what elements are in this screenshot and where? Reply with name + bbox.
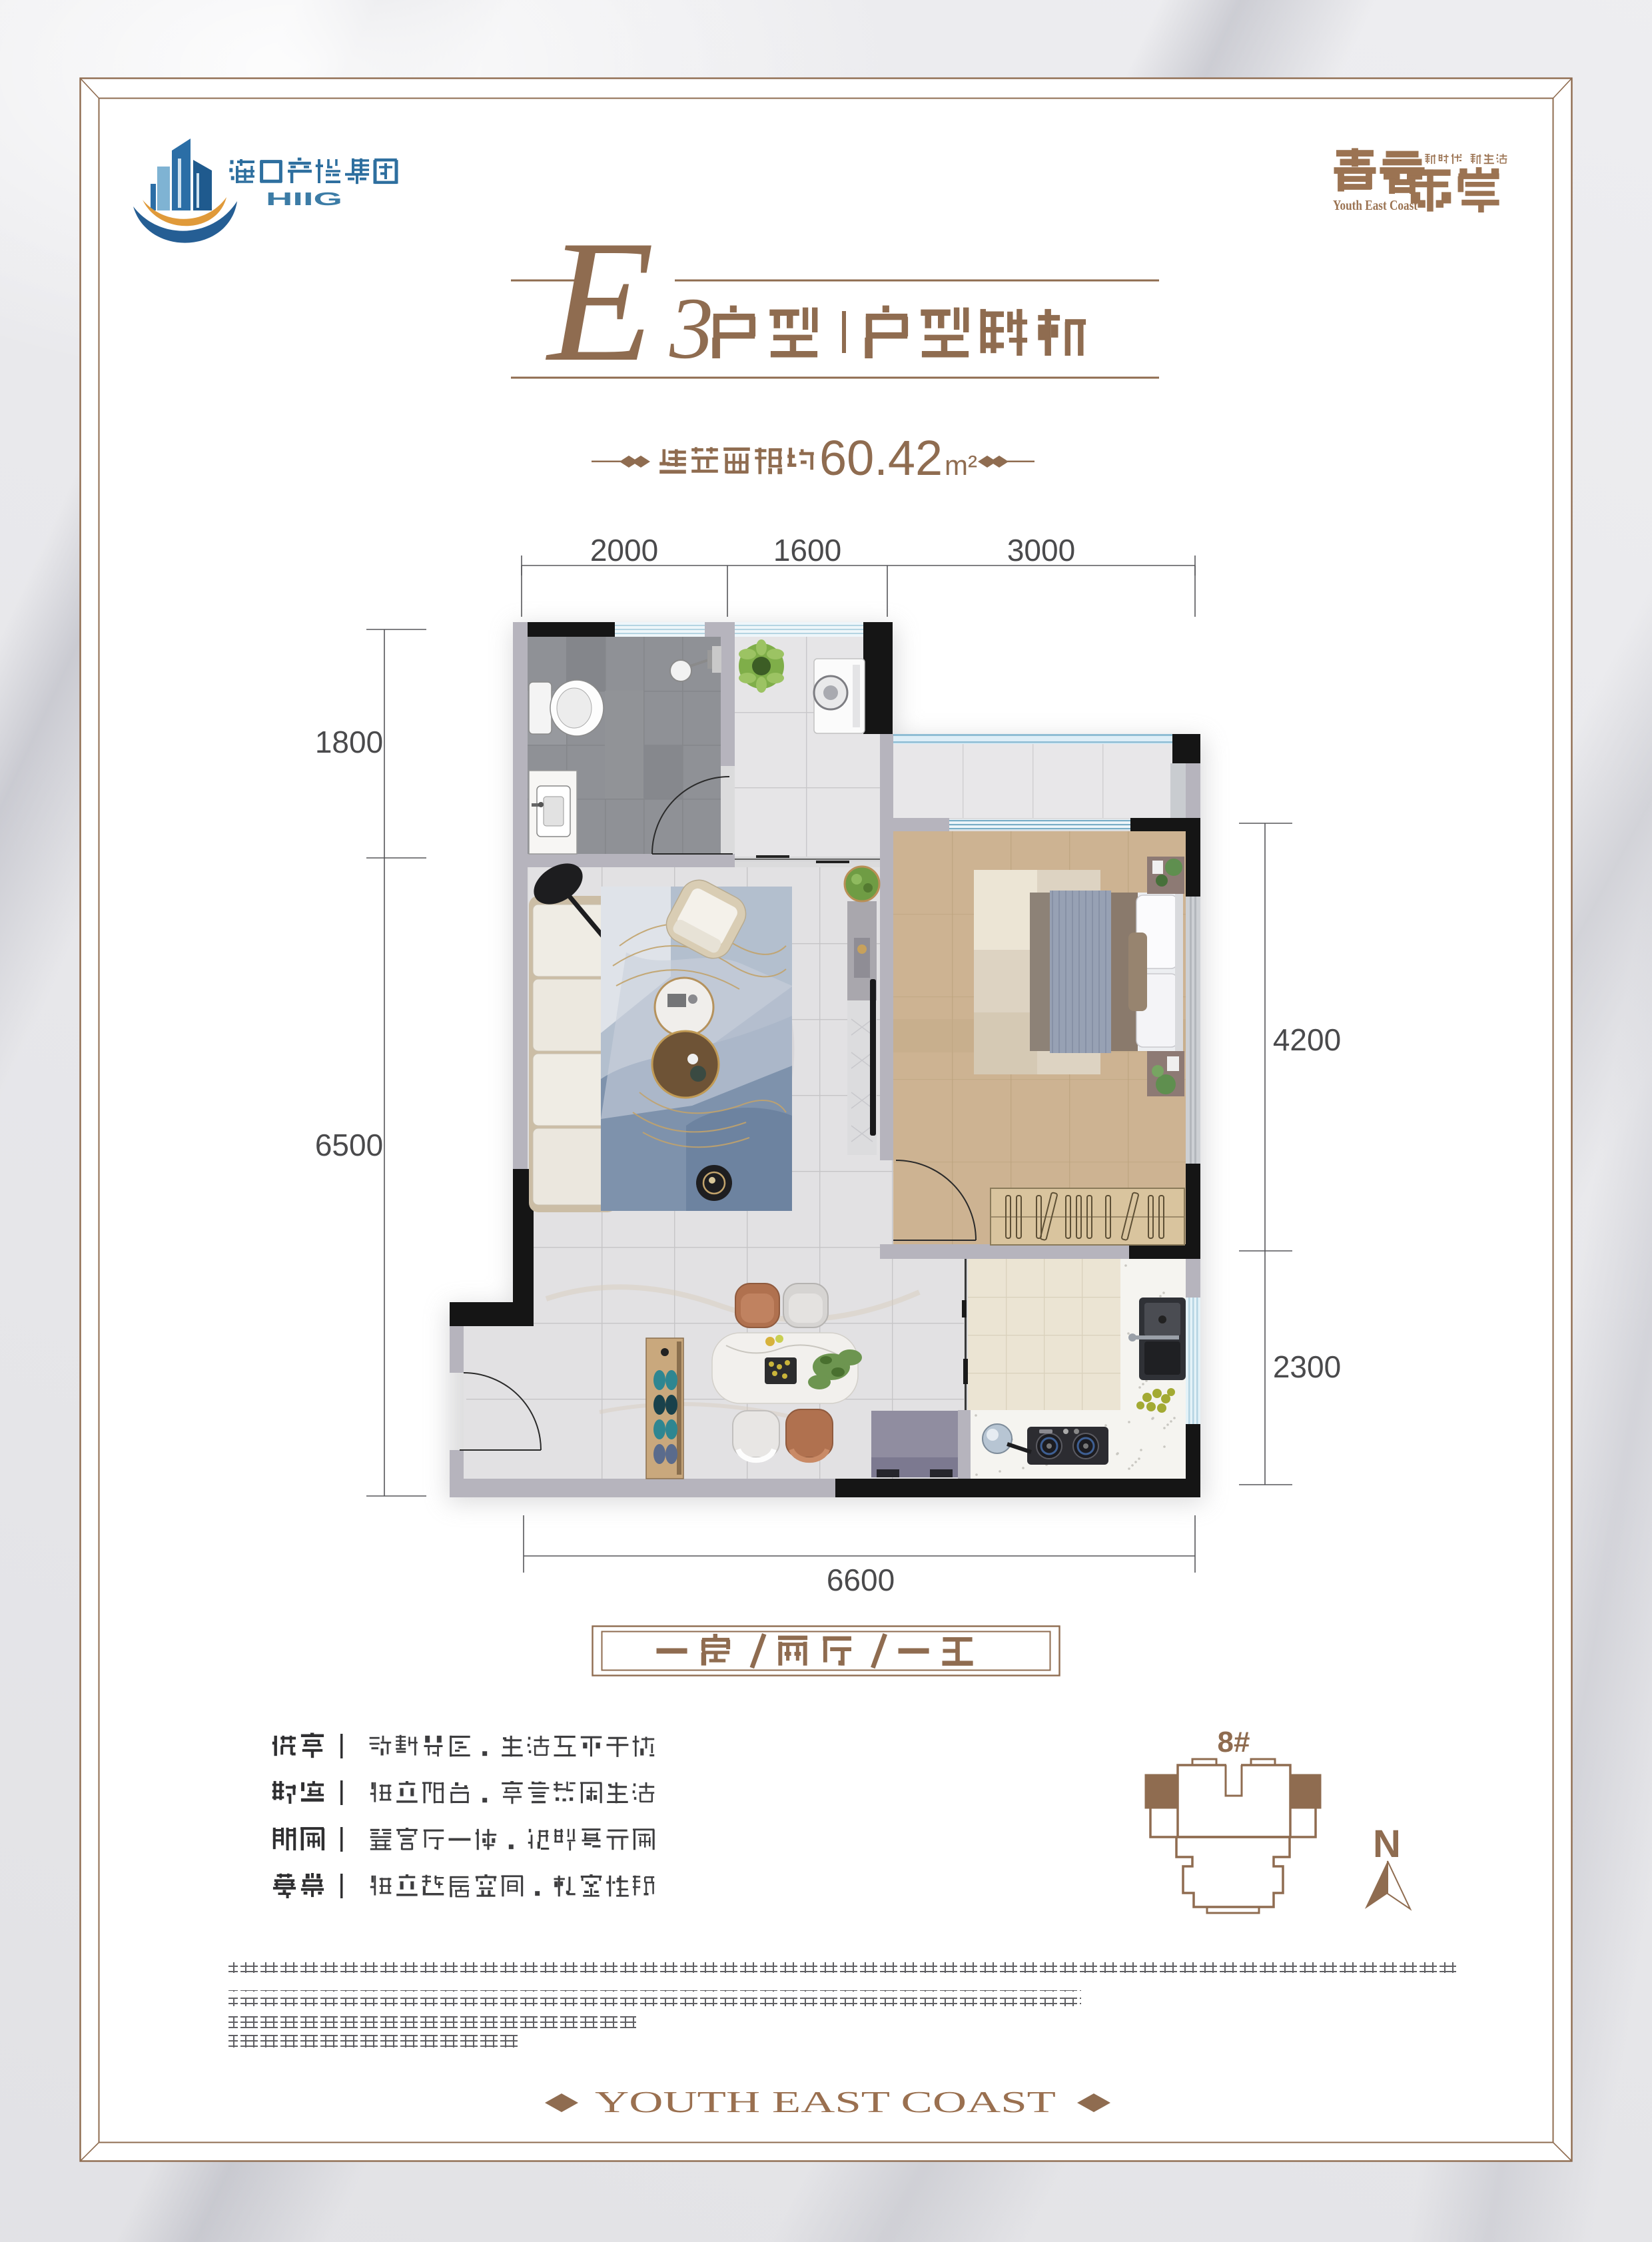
svg-text:1600: 1600 bbox=[773, 533, 841, 567]
svg-text:m²: m² bbox=[945, 450, 977, 481]
svg-text:6600: 6600 bbox=[827, 1563, 895, 1597]
svg-text:3000: 3000 bbox=[1007, 533, 1075, 567]
svg-text:Youth East Coast: Youth East Coast bbox=[1333, 197, 1418, 213]
svg-text:1800: 1800 bbox=[315, 725, 383, 759]
svg-text:3: 3 bbox=[669, 279, 713, 377]
svg-text:60.42: 60.42 bbox=[819, 430, 943, 486]
svg-text:6500: 6500 bbox=[315, 1128, 383, 1162]
svg-text:E: E bbox=[545, 204, 654, 398]
svg-text:YOUTH EAST COAST: YOUTH EAST COAST bbox=[595, 2085, 1056, 2119]
svg-text:8#: 8# bbox=[1218, 1726, 1250, 1758]
svg-text:4200: 4200 bbox=[1273, 1022, 1341, 1057]
svg-text:N: N bbox=[1373, 1822, 1401, 1866]
svg-text:2000: 2000 bbox=[590, 533, 658, 567]
svg-text:2300: 2300 bbox=[1273, 1349, 1341, 1384]
svg-text:HIIG: HIIG bbox=[266, 188, 342, 209]
